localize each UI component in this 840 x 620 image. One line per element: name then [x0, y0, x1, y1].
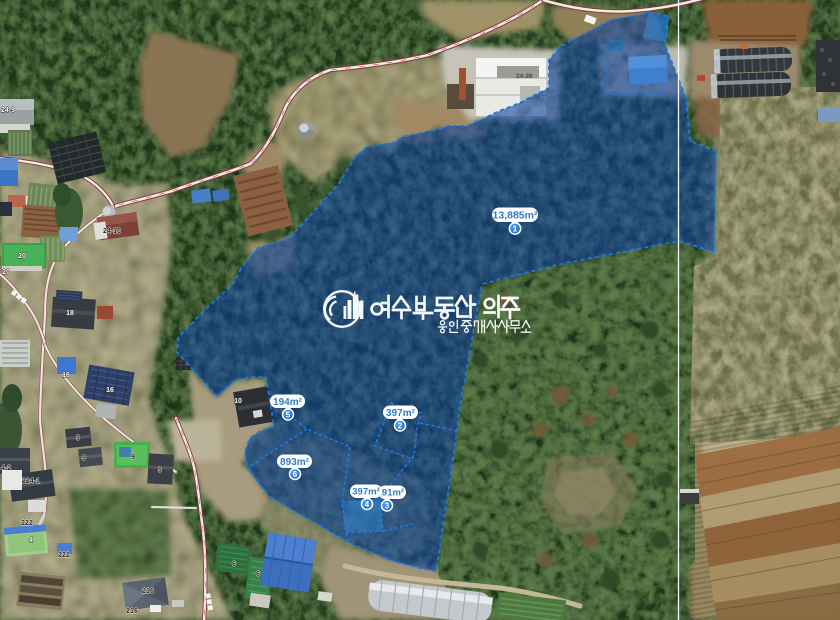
svg-text:18: 18 — [66, 310, 74, 317]
svg-text:16: 16 — [62, 372, 70, 379]
svg-text:4-2: 4-2 — [1, 465, 11, 472]
svg-text:2: 2 — [398, 422, 403, 431]
svg-text:9: 9 — [76, 435, 80, 442]
svg-text:24-9: 24-9 — [1, 107, 15, 114]
svg-text:4: 4 — [29, 537, 33, 544]
svg-text:397m²: 397m² — [386, 408, 416, 419]
svg-text:9: 9 — [82, 455, 86, 462]
svg-text:1: 1 — [513, 225, 518, 234]
svg-text:13,885m²: 13,885m² — [493, 210, 538, 222]
svg-text:16: 16 — [106, 387, 114, 394]
svg-text:224-1: 224-1 — [22, 478, 40, 485]
svg-text:5: 5 — [286, 411, 291, 420]
svg-text:216: 216 — [126, 608, 138, 615]
svg-text:10: 10 — [234, 398, 242, 405]
svg-text:6: 6 — [256, 571, 260, 578]
svg-text:20: 20 — [18, 253, 26, 260]
svg-text:24-26: 24-26 — [516, 73, 533, 80]
svg-text:6: 6 — [232, 561, 236, 568]
svg-text:3: 3 — [385, 502, 390, 511]
svg-text:4: 4 — [365, 500, 370, 509]
svg-text:20: 20 — [2, 269, 10, 276]
svg-text:216: 216 — [142, 588, 154, 595]
svg-text:222: 222 — [21, 520, 33, 527]
svg-text:91m²: 91m² — [382, 488, 404, 499]
svg-text:222: 222 — [58, 552, 70, 559]
svg-text:397m²: 397m² — [352, 487, 379, 498]
svg-text:9: 9 — [158, 467, 162, 474]
svg-text:194m²: 194m² — [273, 397, 303, 408]
svg-text:9: 9 — [131, 454, 135, 461]
svg-text:893m²: 893m² — [280, 457, 310, 468]
svg-text:24-10: 24-10 — [103, 228, 121, 235]
svg-text:6: 6 — [293, 470, 298, 479]
